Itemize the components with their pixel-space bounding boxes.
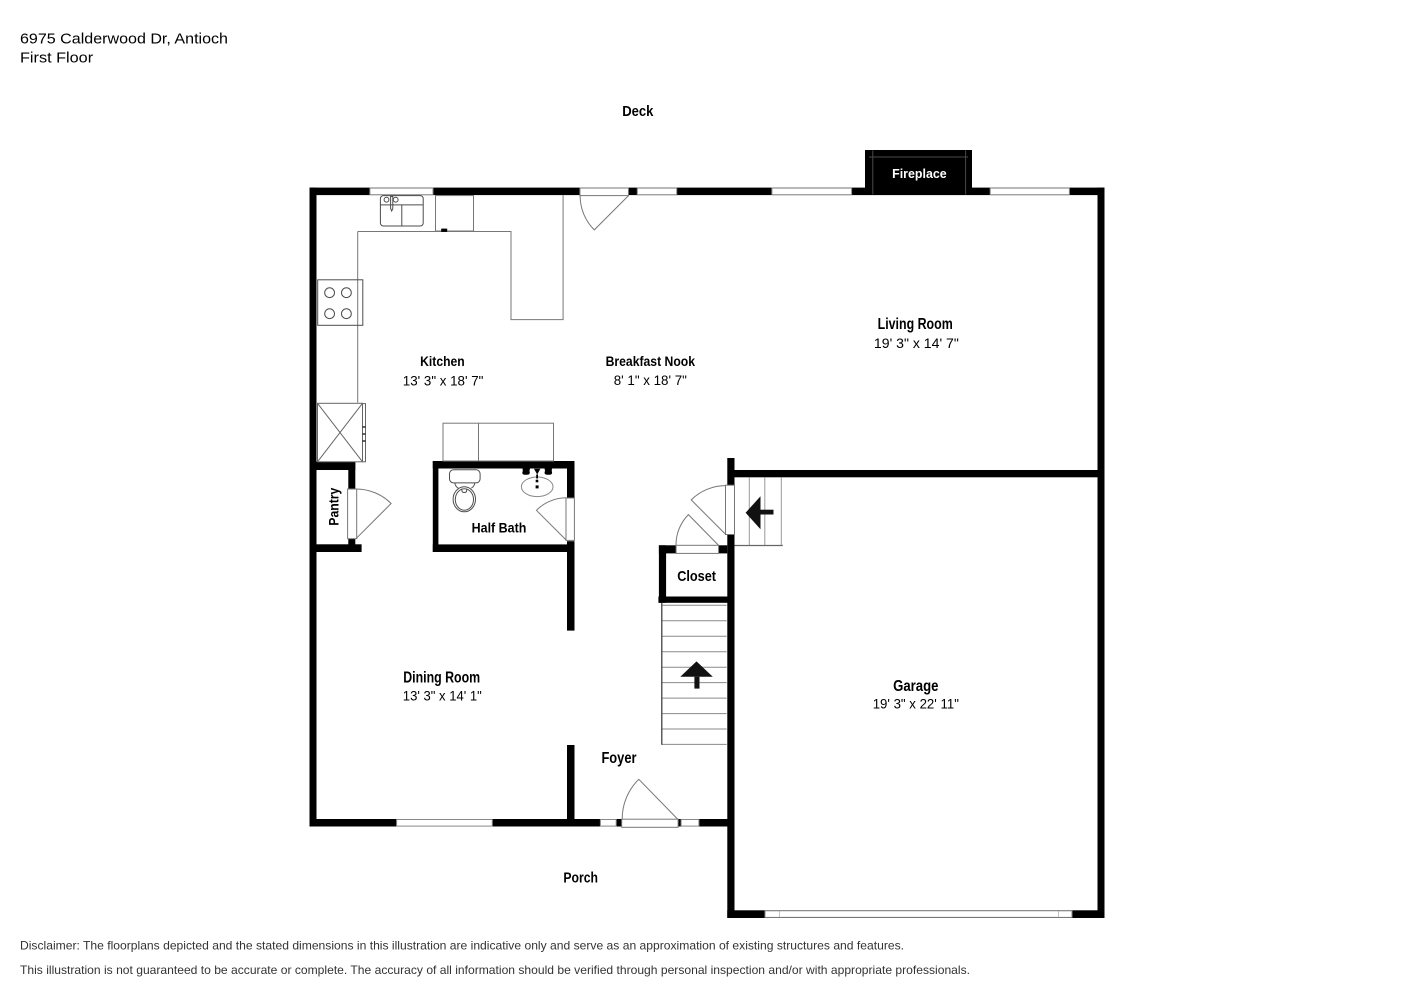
svg-text:19' 3" x 14' 7": 19' 3" x 14' 7" bbox=[874, 335, 959, 351]
svg-text:First Floor: First Floor bbox=[20, 49, 93, 66]
svg-text:Garage: Garage bbox=[893, 678, 938, 695]
svg-text:Disclaimer: The floorplans dep: Disclaimer: The floorplans depicted and … bbox=[20, 938, 904, 952]
svg-text:19' 3" x 22' 11": 19' 3" x 22' 11" bbox=[873, 696, 959, 712]
svg-text:This illustration is not guara: This illustration is not guaranteed to b… bbox=[20, 963, 970, 977]
svg-text:Closet: Closet bbox=[677, 568, 716, 585]
svg-text:13' 3" x 18' 7": 13' 3" x 18' 7" bbox=[403, 372, 484, 388]
svg-text:Foyer: Foyer bbox=[601, 750, 636, 767]
svg-text:Fireplace: Fireplace bbox=[892, 166, 947, 181]
svg-text:6975 Calderwood Dr, Antioch: 6975 Calderwood Dr, Antioch bbox=[20, 30, 228, 47]
svg-text:8' 1" x 18' 7": 8' 1" x 18' 7" bbox=[614, 372, 687, 388]
svg-text:Pantry: Pantry bbox=[326, 488, 342, 526]
svg-text:Breakfast Nook: Breakfast Nook bbox=[606, 353, 696, 369]
svg-text:Deck: Deck bbox=[622, 103, 654, 120]
svg-text:Dining Room: Dining Room bbox=[403, 670, 480, 687]
svg-text:Porch: Porch bbox=[563, 870, 598, 887]
svg-text:Kitchen: Kitchen bbox=[420, 353, 465, 369]
svg-text:13' 3" x 14' 1": 13' 3" x 14' 1" bbox=[403, 687, 482, 703]
svg-text:Living Room: Living Room bbox=[878, 316, 953, 333]
svg-text:Half Bath: Half Bath bbox=[472, 519, 527, 535]
